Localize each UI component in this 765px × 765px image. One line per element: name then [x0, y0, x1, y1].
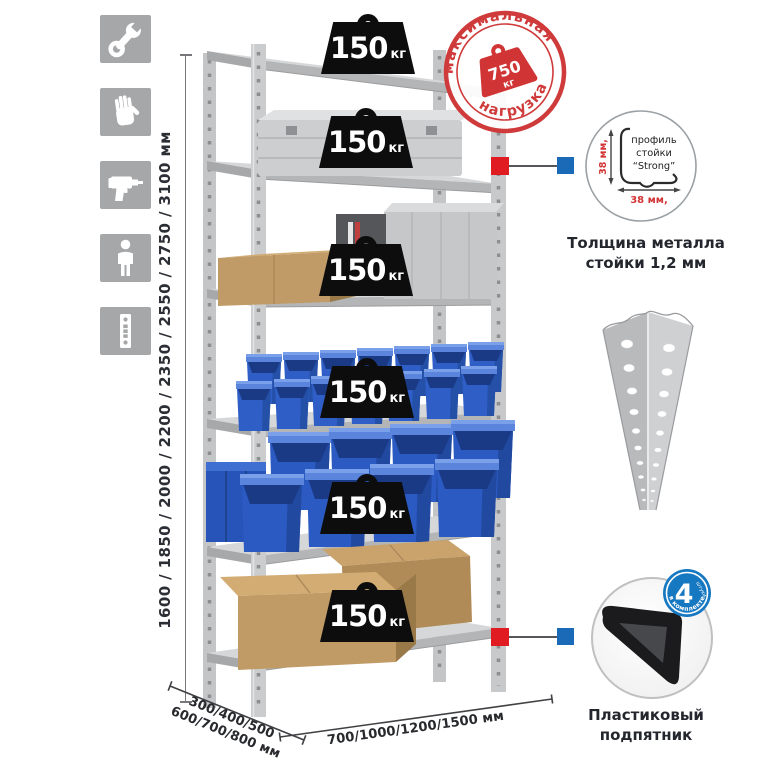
- callout-line-profile: [505, 165, 560, 167]
- callout-marker-red-top: [491, 157, 509, 175]
- weight-value: 150: [329, 494, 387, 523]
- shelf-load-badge-5: 150кг: [320, 474, 414, 534]
- profile-dim-vertical: 38 мм,: [598, 139, 609, 175]
- foot-caption-line2: подпятник: [566, 726, 726, 746]
- weight-value: 150: [329, 602, 387, 631]
- weight-value: 150: [328, 128, 386, 157]
- shelf-load-badge-3: 150кг: [319, 236, 413, 296]
- included-count-badge: 4 штуки в комплекте: [661, 567, 713, 619]
- profile-dim-horizontal: 38 мм,: [630, 195, 668, 206]
- foot-caption-line1: Пластиковый: [566, 706, 726, 726]
- perforated-post-image: [598, 304, 698, 516]
- profile-caption-line2: стойки 1,2 мм: [556, 254, 736, 274]
- max-load-stamp: максимальная нагрузка 750 кг: [427, 0, 587, 156]
- profile-caption-line1: Толщина металла: [556, 234, 736, 254]
- post-profile-detail: 38 мм, 38 мм, профиль стойки “Strong”: [584, 109, 700, 225]
- width-dimension: 700/1000/1200/1500 мм: [268, 680, 568, 752]
- weight-unit: кг: [389, 392, 405, 405]
- profile-label-2: стойки: [636, 148, 672, 159]
- weight-unit: кг: [389, 508, 405, 521]
- callout-marker-blue-bottom: [557, 628, 574, 645]
- shelf-load-badge-4: 150кг: [320, 358, 414, 418]
- product-infographic: 1600 / 1850 / 2000 / 2200 / 2350 / 2550 …: [0, 0, 765, 765]
- profile-label-1: профиль: [631, 135, 677, 146]
- callout-marker-red-bottom: [491, 628, 509, 646]
- weight-unit: кг: [390, 48, 406, 61]
- weight-value: 150: [329, 378, 387, 407]
- width-dim-label: 700/1000/1200/1500 мм: [326, 709, 505, 749]
- profile-label-3: “Strong”: [633, 161, 675, 172]
- foot-caption: Пластиковый подпятник: [566, 706, 726, 745]
- weight-unit: кг: [389, 616, 405, 629]
- weight-unit: кг: [388, 270, 404, 283]
- profile-caption: Толщина металла стойки 1,2 мм: [556, 234, 736, 273]
- shelf-load-badge-1: 150кг: [321, 14, 415, 74]
- shelf-load-badge-6: 150кг: [320, 582, 414, 642]
- weight-value: 150: [328, 256, 386, 285]
- weight-value: 150: [330, 34, 388, 63]
- callout-marker-blue-top: [557, 157, 574, 174]
- callout-line-foot: [505, 636, 560, 638]
- weight-unit: кг: [388, 142, 404, 155]
- shelf-load-badge-2: 150кг: [319, 108, 413, 168]
